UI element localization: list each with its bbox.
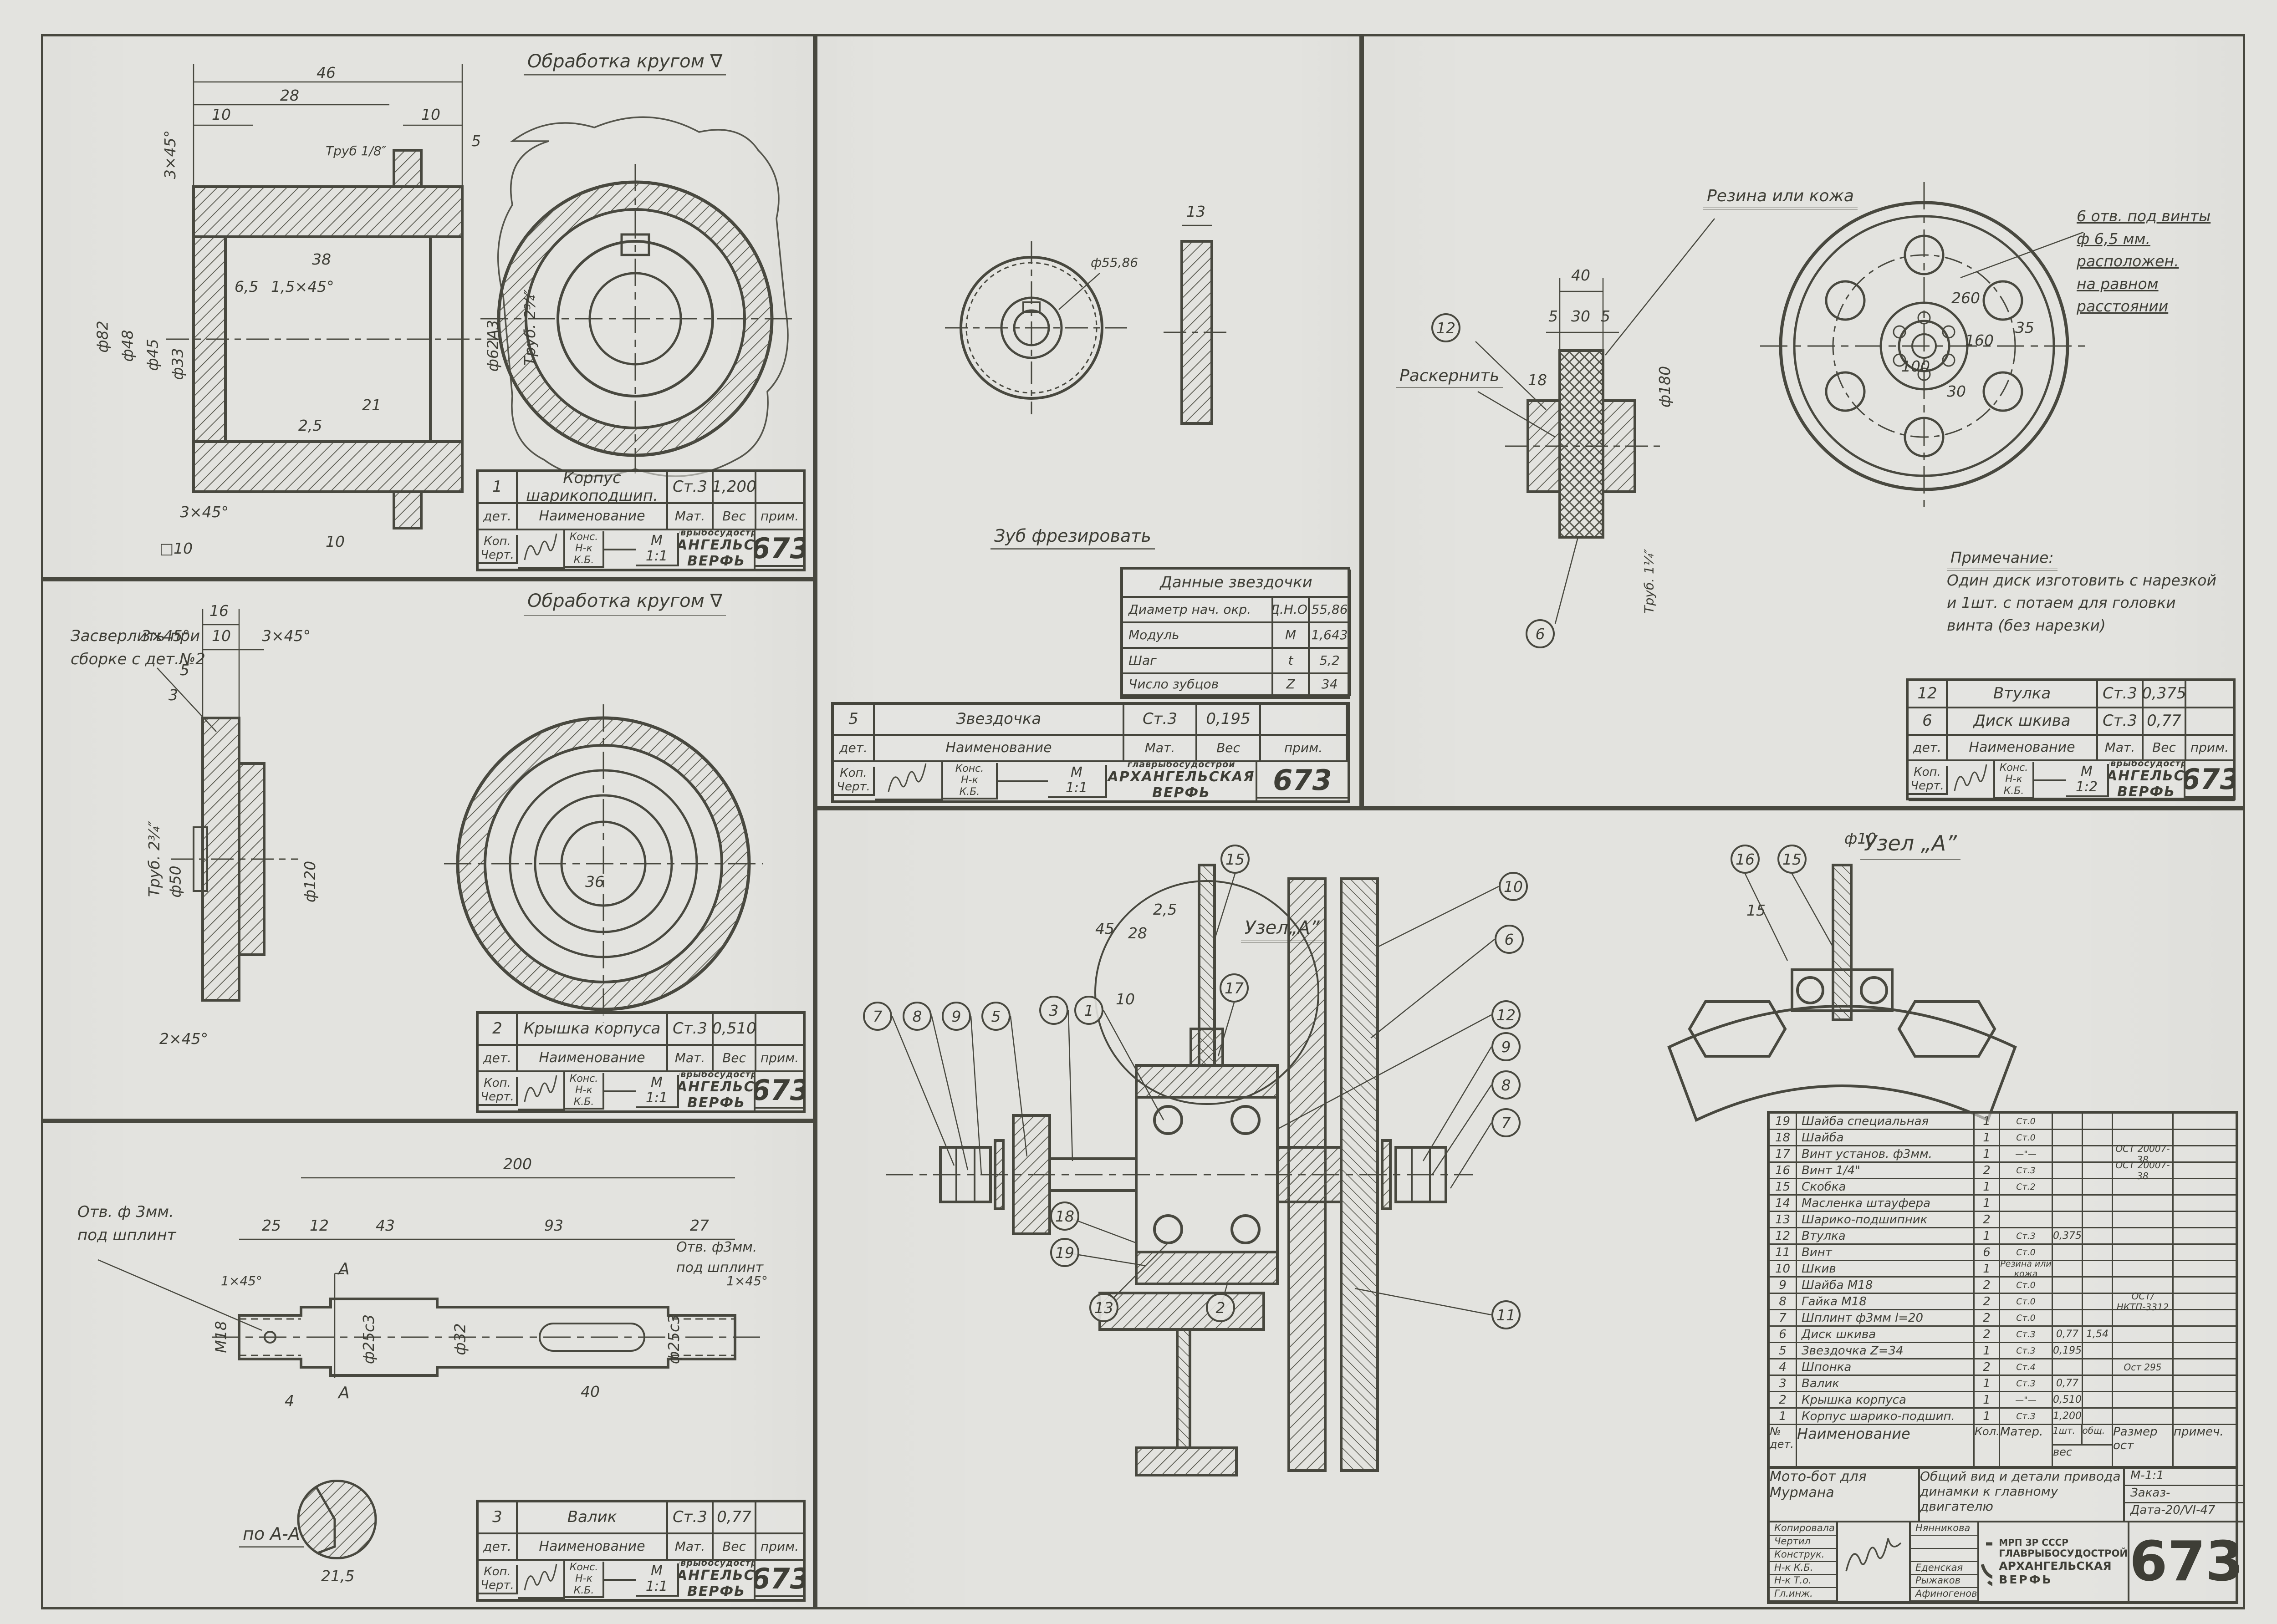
pl-name: Шайба bbox=[1797, 1130, 1975, 1146]
dim: ф62А3 bbox=[484, 320, 501, 372]
pl-name: Корпус шарико-подшип. bbox=[1797, 1409, 1975, 1425]
pl-mat: Ст.0 bbox=[2000, 1278, 2053, 1294]
dim: 46 bbox=[317, 64, 336, 81]
section-letter: А bbox=[338, 1384, 350, 1402]
pl-qty: 2 bbox=[1975, 1359, 2000, 1376]
scale: 1:1 bbox=[646, 549, 668, 565]
pl-weight1 bbox=[2053, 1196, 2083, 1212]
dim: 21 bbox=[362, 396, 381, 414]
table-cell: Д.Н.О. bbox=[1273, 598, 1310, 623]
table-cell: 1,643 bbox=[1310, 623, 1351, 649]
item-num: 2 bbox=[479, 1014, 518, 1046]
tb-label: Коп. bbox=[484, 535, 511, 549]
dim: 43 bbox=[376, 1217, 395, 1234]
dim: 10 bbox=[1116, 990, 1135, 1008]
item-num: 12 bbox=[1909, 681, 1948, 708]
dim: ф55,86 bbox=[1091, 255, 1138, 270]
mill-note: Зуб фрезировать bbox=[990, 526, 1155, 550]
dim: 200 bbox=[503, 1155, 532, 1173]
pl-weight1 bbox=[2053, 1146, 2083, 1163]
pl-weight1: 0,77 bbox=[2053, 1376, 2083, 1392]
dim: 10 bbox=[212, 627, 231, 645]
scale: 1:2 bbox=[2076, 779, 2098, 795]
pl-qty: 2 bbox=[1975, 1278, 2000, 1294]
pl-qty: 1 bbox=[1975, 1179, 2000, 1196]
pl-mat: Ст.3 bbox=[2000, 1163, 2053, 1179]
drawing-sheet: Обработка кругом ∇ 46 28 10 10 5 3×45° Т… bbox=[0, 0, 2277, 1624]
scale: М bbox=[1071, 765, 1082, 781]
pl-weight2 bbox=[2083, 1343, 2113, 1359]
pl-h: Кол. bbox=[1975, 1425, 2000, 1466]
part-callout: 6 bbox=[1495, 925, 1524, 954]
role: Н-к Т.о. bbox=[1770, 1575, 1836, 1588]
dim: 3 bbox=[168, 686, 178, 704]
pl-note bbox=[2174, 1163, 2236, 1179]
dim: 18 bbox=[1528, 371, 1547, 389]
pl-qty: 2 bbox=[1975, 1310, 2000, 1327]
tb-label: Вес bbox=[1197, 736, 1261, 762]
pl-standard bbox=[2113, 1376, 2174, 1392]
dim: 10 bbox=[326, 533, 345, 550]
note-title: Примечание: bbox=[1947, 549, 2057, 570]
dim: ф120 bbox=[301, 861, 319, 902]
dim: 38 bbox=[312, 250, 331, 268]
pl-note bbox=[2174, 1359, 2236, 1376]
scale: М bbox=[651, 533, 663, 549]
pl-mat: Ст.0 bbox=[2000, 1130, 2053, 1146]
dim: 13 bbox=[1186, 203, 1205, 220]
org-name: главрыбосудострой bbox=[679, 1561, 756, 1568]
part-callout: 19 bbox=[1050, 1238, 1079, 1267]
org-line: АРХАНГЕЛЬСКАЯ bbox=[1999, 1559, 2128, 1573]
tb-label: Мат. bbox=[1124, 736, 1197, 762]
item-num: 5 bbox=[834, 705, 875, 736]
pl-mat: Резина или кожа bbox=[2000, 1261, 2053, 1278]
section-letter: А bbox=[338, 1260, 350, 1278]
dim: ф180 bbox=[1656, 366, 1674, 407]
org-name: АРХАНГЕЛЬСКАЯ bbox=[679, 538, 756, 554]
part-callout: 17 bbox=[1220, 973, 1249, 1003]
pl-name: Звездочка Z=34 bbox=[1797, 1343, 1975, 1359]
org-name: АРХАНГЕЛЬСКАЯ bbox=[679, 1568, 756, 1584]
tb-empty bbox=[604, 1579, 636, 1581]
pl-name: Диск шкива bbox=[1797, 1327, 1975, 1343]
pl-weight2 bbox=[2083, 1245, 2113, 1261]
dim: 2,5 bbox=[298, 417, 322, 434]
org-logo: МРП ЗР СССР ГЛАВРЫБОСУДОСТРОЙ АРХАНГЕЛЬС… bbox=[1979, 1522, 2129, 1601]
scale: М bbox=[651, 1563, 663, 1579]
pl-note bbox=[2174, 1409, 2236, 1425]
tb-label: Мат. bbox=[2098, 736, 2144, 761]
tb-label: дет. bbox=[479, 1046, 518, 1072]
role-name: Рыжаков bbox=[1911, 1575, 1977, 1588]
pl-standard bbox=[2113, 1343, 2174, 1359]
pl-weight2 bbox=[2083, 1392, 2113, 1409]
pl-num: 13 bbox=[1770, 1212, 1797, 1228]
org-name: главрыбосудострой bbox=[679, 1072, 756, 1079]
shaft-note-left: Отв. ф 3мм. под шплинт bbox=[77, 1201, 176, 1247]
item-weight: 0,375 bbox=[2144, 681, 2186, 708]
table-cell: М bbox=[1273, 623, 1310, 649]
part-callout: 18 bbox=[1050, 1201, 1079, 1231]
item-weight: 0,195 bbox=[1197, 705, 1261, 736]
pl-name: Крышка корпуса bbox=[1797, 1392, 1975, 1409]
tb-label: Черт. bbox=[480, 1579, 514, 1593]
pl-mat: Ст.2 bbox=[2000, 1179, 2053, 1196]
item-name: Втулка bbox=[1948, 681, 2098, 708]
kern-label: Раскернить bbox=[1396, 367, 1503, 389]
dim: 5 bbox=[180, 661, 189, 679]
pl-weight1: 0,375 bbox=[2053, 1228, 2083, 1245]
pl-note bbox=[2174, 1114, 2236, 1130]
tb-label: Конс. bbox=[955, 763, 984, 774]
pl-qty: 1 bbox=[1975, 1228, 2000, 1245]
org-name: ВЕРФЬ bbox=[2117, 784, 2175, 800]
pl-num: 14 bbox=[1770, 1196, 1797, 1212]
dim: ф82 bbox=[94, 321, 112, 352]
dim: 28 bbox=[280, 87, 299, 104]
part-callout: 15 bbox=[1220, 845, 1250, 874]
item-weight: 0,77 bbox=[2144, 708, 2186, 736]
pl-h: Размер ост bbox=[2113, 1425, 2174, 1466]
signature bbox=[875, 762, 943, 800]
holes-note: 6 отв. под винты ф 6,5 мм. расположен. н… bbox=[2077, 205, 2243, 318]
pl-num: 2 bbox=[1770, 1392, 1797, 1409]
parts-list: 19 Шайба специальная 1 Ст.0 18 Шайба 1 С… bbox=[1767, 1111, 2238, 1469]
part-callout: 15 bbox=[1777, 845, 1807, 874]
drawing-title: Общий вид и детали привода динамки к гла… bbox=[1920, 1469, 2125, 1521]
pl-num: 3 bbox=[1770, 1376, 1797, 1392]
dim: ф45 bbox=[144, 339, 162, 371]
part-callout: 2 bbox=[1206, 1293, 1235, 1322]
pl-name: Скобка bbox=[1797, 1179, 1975, 1196]
item-mat: Ст.3 bbox=[668, 1014, 714, 1046]
part-callout: 13 bbox=[1089, 1293, 1118, 1322]
pl-note bbox=[2174, 1245, 2236, 1261]
tb-label: Наименование bbox=[518, 1046, 668, 1072]
tb-label: Мат. bbox=[668, 504, 714, 530]
pl-standard bbox=[2113, 1212, 2174, 1228]
item-name: Диск шкива bbox=[1948, 708, 2098, 736]
pl-qty: 6 bbox=[1975, 1245, 2000, 1261]
section-label: по А-А bbox=[239, 1524, 304, 1548]
dim: 4 bbox=[285, 1392, 294, 1410]
org-name: главрыбосудострой bbox=[2109, 761, 2185, 769]
dim: 21,5 bbox=[321, 1567, 354, 1585]
pl-name: Шайба М18 bbox=[1797, 1278, 1975, 1294]
part-callout: 10 bbox=[1499, 872, 1528, 901]
dim: ф25с3 bbox=[360, 1314, 378, 1364]
tb-label: Конс. bbox=[2000, 762, 2028, 774]
pl-num: 18 bbox=[1770, 1130, 1797, 1146]
pl-mat: Ст.3 bbox=[2000, 1409, 2053, 1425]
dim: 5 bbox=[471, 132, 481, 150]
dim: 30 bbox=[1947, 382, 1966, 400]
dim: 3×45° bbox=[141, 627, 190, 645]
pl-name: Шкив bbox=[1797, 1261, 1975, 1278]
pl-mat: Ст.3 bbox=[2000, 1228, 2053, 1245]
dim: М18 bbox=[212, 1321, 230, 1353]
pl-qty: 1 bbox=[1975, 1376, 2000, 1392]
part-callout: 8 bbox=[903, 1002, 932, 1031]
pl-weight1 bbox=[2053, 1261, 2083, 1278]
pl-note bbox=[2174, 1327, 2236, 1343]
sheet-number-large: 673 bbox=[2129, 1522, 2244, 1601]
pl-mat bbox=[2000, 1212, 2053, 1228]
signature bbox=[1838, 1522, 1911, 1601]
org-line: МРП ЗР СССР bbox=[1999, 1537, 2128, 1548]
role-names: НянниковаЕденскаяРыжаковАфиногенов bbox=[1911, 1522, 1979, 1601]
dim: 2×45° bbox=[159, 1030, 208, 1048]
pl-note bbox=[2174, 1278, 2236, 1294]
pl-name: Шайба специальная bbox=[1797, 1114, 1975, 1130]
tb-label: Черт. bbox=[1910, 779, 1944, 793]
dim: ф32 bbox=[451, 1323, 469, 1355]
dim: ф25с3 bbox=[665, 1314, 683, 1364]
pl-name: Масленка штауфера bbox=[1797, 1196, 1975, 1212]
pl-weight2 bbox=[2083, 1163, 2113, 1179]
pl-h: Матер. bbox=[2000, 1425, 2053, 1466]
tb-label: Мат. bbox=[668, 1046, 714, 1072]
sheet-number: 673 bbox=[756, 1074, 805, 1108]
pl-weight2 bbox=[2083, 1376, 2113, 1392]
org-name: главрыбосудострой bbox=[679, 530, 756, 538]
org-line: ГЛАВРЫБОСУДОСТРОЙ bbox=[1999, 1548, 2128, 1559]
dim: 100 bbox=[1901, 357, 1930, 375]
dim: ф10 bbox=[1844, 830, 1876, 847]
signature bbox=[518, 530, 565, 569]
pl-name: Гайка М18 bbox=[1797, 1294, 1975, 1310]
role-name bbox=[1911, 1549, 1977, 1562]
tb-label: Н-к К.Б. bbox=[2004, 774, 2024, 797]
pl-weight2 bbox=[2083, 1409, 2113, 1425]
tb-label: Вес bbox=[714, 1046, 756, 1072]
pl-qty: 1 bbox=[1975, 1130, 2000, 1146]
part-callout: 7 bbox=[863, 1002, 892, 1031]
dim: Труб. 2¾″ bbox=[145, 821, 163, 897]
pl-weight2 bbox=[2083, 1196, 2113, 1212]
dim: 35 bbox=[2015, 319, 2034, 336]
pl-name: Винт установ. ф3мм. bbox=[1797, 1146, 1975, 1163]
table-cell: Шаг bbox=[1123, 649, 1273, 674]
part-callout: 11 bbox=[1491, 1300, 1521, 1329]
pl-weight2 bbox=[2083, 1261, 2113, 1278]
pl-num: 6 bbox=[1770, 1327, 1797, 1343]
sprocket-data-table: Данные звездочки Диаметр нач. окр. Д.Н.О… bbox=[1120, 567, 1350, 699]
pl-weight2 bbox=[2083, 1278, 2113, 1294]
pl-h: 1шт. bbox=[2053, 1425, 2083, 1444]
pl-num: 17 bbox=[1770, 1146, 1797, 1163]
dim: 3×45° bbox=[161, 130, 179, 179]
pl-num: 5 bbox=[1770, 1343, 1797, 1359]
tb-label: Наименование bbox=[518, 1534, 668, 1561]
dim: 45 bbox=[1095, 920, 1114, 937]
role-name: Нянникова bbox=[1911, 1522, 1977, 1536]
pl-mat: Ст.3 bbox=[2000, 1376, 2053, 1392]
org-name: ВЕРФЬ bbox=[687, 554, 745, 570]
pl-standard bbox=[2113, 1310, 2174, 1327]
sheet-number: 673 bbox=[756, 532, 805, 566]
tb-label: Вес bbox=[2144, 736, 2186, 761]
tb-label: дет. bbox=[479, 1534, 518, 1561]
role-name: Афиногенов bbox=[1911, 1588, 1977, 1601]
dim: Труб. 1¼″ bbox=[1641, 549, 1656, 614]
tb-label: прим. bbox=[756, 1046, 805, 1072]
pl-standard bbox=[2113, 1245, 2174, 1261]
note-body: Один диск изготовить с нарезкой и 1шт. с… bbox=[1947, 569, 2216, 637]
dim: 30 bbox=[1571, 307, 1590, 325]
pl-qty: 1 bbox=[1975, 1114, 2000, 1130]
pl-name: Винт bbox=[1797, 1245, 1975, 1261]
pl-mat: Ст.0 bbox=[2000, 1294, 2053, 1310]
shaft-note-right: Отв. ф3мм. под шплинт bbox=[676, 1237, 763, 1278]
item-note bbox=[1261, 705, 1348, 736]
pl-weight2 bbox=[2083, 1130, 2113, 1146]
pl-weight1 bbox=[2053, 1163, 2083, 1179]
sheet-number: 673 bbox=[756, 1563, 805, 1597]
dim: 27 bbox=[690, 1217, 709, 1234]
pl-weight2 bbox=[2083, 1114, 2113, 1130]
panel-housing: Обработка кругом ∇ 46 28 10 10 5 3×45° Т… bbox=[41, 34, 815, 579]
title-block-pulley: 12 Втулка Ст.3 0,375 6 Диск шкива Ст.3 0… bbox=[1906, 678, 2236, 800]
pl-weight2 bbox=[2083, 1179, 2113, 1196]
pl-h: примеч. bbox=[2174, 1425, 2236, 1466]
item-mat: Ст.3 bbox=[668, 1502, 714, 1534]
dim: Труб. 2¾″ bbox=[521, 290, 539, 366]
table-cell: Число зубцов bbox=[1123, 674, 1273, 696]
dim: □10 bbox=[159, 540, 193, 557]
scale: 1:1 bbox=[646, 1579, 668, 1595]
dim: 1×45° bbox=[726, 1273, 768, 1288]
part-callout: 7 bbox=[1491, 1108, 1521, 1137]
pl-num: 10 bbox=[1770, 1261, 1797, 1278]
dim: 160 bbox=[1965, 331, 1994, 349]
pl-h: вес bbox=[2053, 1446, 2112, 1466]
part-callout: 1 bbox=[1074, 996, 1103, 1025]
role-name: Еденская bbox=[1911, 1562, 1977, 1575]
pl-qty: 2 bbox=[1975, 1212, 2000, 1228]
tb-label: Мат. bbox=[668, 1534, 714, 1561]
pl-standard bbox=[2113, 1327, 2174, 1343]
tb-label: Н-к К.Б. bbox=[574, 1573, 594, 1596]
pl-mat: Ст.0 bbox=[2000, 1310, 2053, 1327]
pl-weight1 bbox=[2053, 1359, 2083, 1376]
pl-mat: —"— bbox=[2000, 1146, 2053, 1163]
pl-num: 11 bbox=[1770, 1245, 1797, 1261]
pl-num: 4 bbox=[1770, 1359, 1797, 1376]
pl-name: Шарико-подшипник bbox=[1797, 1212, 1975, 1228]
tb-label: Наименование bbox=[1948, 736, 2098, 761]
pl-standard bbox=[2113, 1228, 2174, 1245]
object-name: Мото-бот для Мурмана bbox=[1770, 1469, 1920, 1521]
pl-weight1 bbox=[2053, 1179, 2083, 1196]
part-callout: 5 bbox=[981, 1002, 1011, 1031]
item-note bbox=[2186, 708, 2235, 736]
pl-qty: 1 bbox=[1975, 1343, 2000, 1359]
tb-label: Черт. bbox=[837, 780, 870, 794]
pl-weight2 bbox=[2083, 1228, 2113, 1245]
item-num: 6 bbox=[1909, 708, 1948, 736]
pl-qty: 1 bbox=[1975, 1409, 2000, 1425]
scale: М bbox=[651, 1075, 663, 1091]
dim: 12 bbox=[310, 1217, 329, 1234]
pl-name: Винт 1/4" bbox=[1797, 1163, 1975, 1179]
pl-standard bbox=[2113, 1261, 2174, 1278]
item-note bbox=[756, 1502, 805, 1534]
table-title: Данные звездочки bbox=[1123, 570, 1351, 598]
part-callout: 9 bbox=[942, 1002, 971, 1031]
tb-label: Черт. bbox=[480, 1090, 514, 1104]
pl-weight2 bbox=[2083, 1310, 2113, 1327]
tb-label: Коп. bbox=[484, 1077, 511, 1090]
tb-label: прим. bbox=[1261, 736, 1348, 762]
dim: 1×45° bbox=[221, 1273, 262, 1288]
pl-h: общ. bbox=[2083, 1425, 2112, 1444]
pl-num: 19 bbox=[1770, 1114, 1797, 1130]
dim: 10 bbox=[212, 106, 231, 123]
tb-label: дет. bbox=[479, 504, 518, 530]
signature bbox=[518, 1561, 565, 1599]
pl-num: 15 bbox=[1770, 1179, 1797, 1196]
pl-num: 16 bbox=[1770, 1163, 1797, 1179]
dim: 6,5 bbox=[235, 278, 258, 295]
tb-label: Вес bbox=[714, 1534, 756, 1561]
pl-note bbox=[2174, 1146, 2236, 1163]
pl-num: 8 bbox=[1770, 1294, 1797, 1310]
pl-standard bbox=[2113, 1196, 2174, 1212]
pl-weight1: 0,195 bbox=[2053, 1343, 2083, 1359]
role: Чертил bbox=[1770, 1536, 1836, 1549]
date: Дата-20/VI-47 bbox=[2125, 1503, 2244, 1521]
dim: 40 bbox=[581, 1383, 600, 1400]
pl-weight2: 1,54 bbox=[2083, 1327, 2113, 1343]
tb-label: Конс. bbox=[570, 531, 598, 543]
table-cell: Диаметр нач. окр. bbox=[1123, 598, 1273, 623]
pl-standard: ОСТ/НКТП-3312 bbox=[2113, 1294, 2174, 1310]
role: Копировала bbox=[1770, 1522, 1836, 1536]
pl-weight1: 1,200 bbox=[2053, 1409, 2083, 1425]
pl-note bbox=[2174, 1261, 2236, 1278]
dim: 36 bbox=[585, 873, 604, 891]
item-num: 3 bbox=[479, 1502, 518, 1534]
detail-marker: Узел„А” bbox=[1241, 917, 1323, 942]
panel-assembly: Узел „А” Узел„А” 7 8 9 5 3 1 15 17 10 6 … bbox=[815, 808, 2245, 1609]
dim: Труб 1/8″ bbox=[326, 143, 386, 158]
org-line: ВЕРФЬ bbox=[1999, 1573, 2128, 1587]
panel1-heading: Обработка кругом ∇ bbox=[524, 51, 726, 76]
panel-pulley-disc: Резина или кожа Раскернить 6 отв. под ви… bbox=[1362, 34, 2245, 808]
tb-label: прим. bbox=[756, 1534, 805, 1561]
tb-empty bbox=[604, 1090, 636, 1092]
pl-note bbox=[2174, 1310, 2236, 1327]
pl-name: Шпонка bbox=[1797, 1359, 1975, 1376]
tb-label: Коп. bbox=[1914, 766, 1941, 779]
tb-label: Наименование bbox=[518, 504, 668, 530]
pl-num: 12 bbox=[1770, 1228, 1797, 1245]
item-mat: Ст.3 bbox=[2098, 708, 2144, 736]
pl-note bbox=[2174, 1212, 2236, 1228]
pl-note bbox=[2174, 1294, 2236, 1310]
panel-cover: Обработка кругом ∇ Засверлить при сборке… bbox=[41, 579, 815, 1121]
table-cell: 34 bbox=[1310, 674, 1351, 696]
pl-weight1 bbox=[2053, 1130, 2083, 1146]
pl-weight2 bbox=[2083, 1359, 2113, 1376]
pl-qty: 2 bbox=[1975, 1294, 2000, 1310]
dim: ф50 bbox=[167, 865, 184, 897]
parts-header: № дет. Наименование Кол. Матер. 1шт. общ… bbox=[1770, 1425, 2236, 1466]
pl-note bbox=[2174, 1130, 2236, 1146]
pl-name: Шплинт ф3мм l=20 bbox=[1797, 1310, 1975, 1327]
